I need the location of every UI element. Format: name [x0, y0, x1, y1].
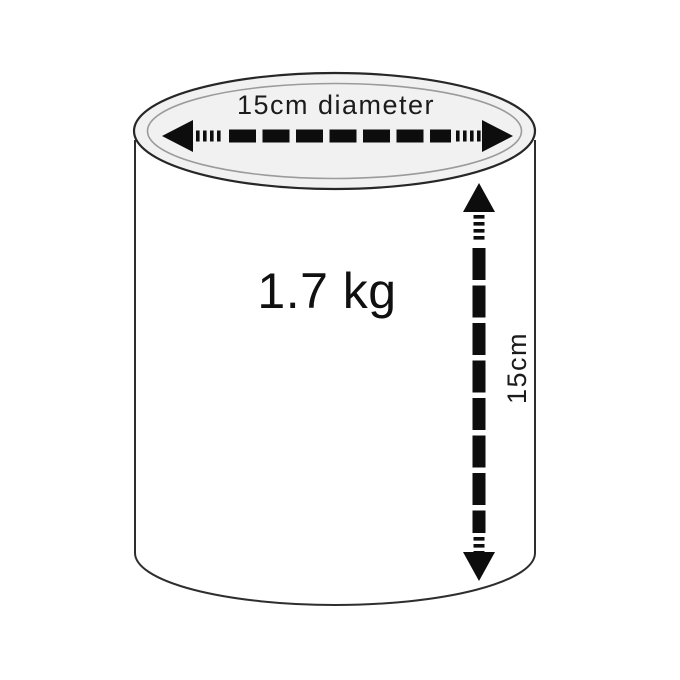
weight-label: 1.7 kg [257, 263, 396, 319]
diameter-label: 15cm diameter [237, 90, 435, 120]
diagram-svg: 15cm diameter 1.7 kg 15cm [0, 0, 680, 680]
height-label: 15cm [502, 332, 532, 404]
cylinder-dimension-diagram: 15cm diameter 1.7 kg 15cm [0, 0, 680, 680]
